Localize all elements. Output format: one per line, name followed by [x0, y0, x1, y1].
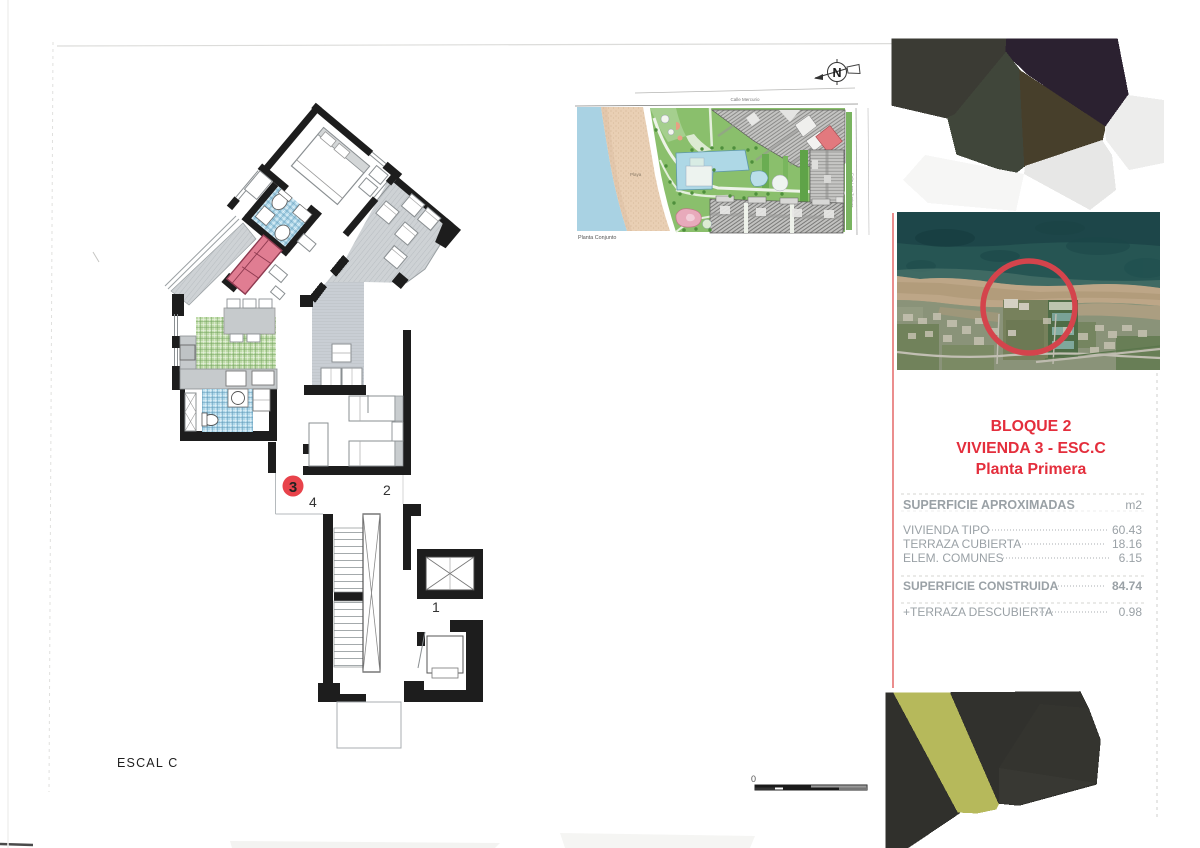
svg-text:0.98: 0.98	[1119, 605, 1143, 619]
svg-text:BLOQUE 2: BLOQUE 2	[991, 418, 1072, 435]
svg-text:Playa: Playa	[630, 172, 642, 177]
svg-text:84.74: 84.74	[1112, 579, 1142, 593]
svg-text:4: 4	[309, 494, 317, 510]
svg-text:SUPERFICIE CONSTRUIDA: SUPERFICIE CONSTRUIDA	[903, 579, 1059, 593]
svg-text:Calle Mercurio: Calle Mercurio	[730, 97, 760, 102]
svg-text:1: 1	[432, 599, 440, 615]
svg-text:VIVIENDA 3 - ESC.C: VIVIENDA 3 - ESC.C	[956, 440, 1106, 457]
svg-text:6.15: 6.15	[1119, 551, 1143, 565]
svg-text:+TERRAZA DESCUBIERTA: +TERRAZA DESCUBIERTA	[903, 605, 1053, 619]
svg-text:3: 3	[289, 479, 297, 496]
svg-text:m2: m2	[1125, 498, 1142, 512]
svg-text:ELEM. COMUNES: ELEM. COMUNES	[903, 551, 1004, 565]
svg-text:2: 2	[383, 482, 391, 498]
svg-text:Planta Conjunto: Planta Conjunto	[578, 235, 616, 241]
svg-text:ESCAL C: ESCAL C	[117, 756, 178, 770]
svg-text:TERRAZA CUBIERTA: TERRAZA CUBIERTA	[903, 537, 1021, 551]
svg-text:18.16: 18.16	[1112, 537, 1142, 551]
svg-text:N: N	[832, 66, 841, 80]
svg-text:SUPERFICIE APROXIMADAS: SUPERFICIE APROXIMADAS	[903, 498, 1075, 512]
svg-text:0: 0	[751, 774, 756, 784]
svg-text:Planta Primera: Planta Primera	[976, 461, 1087, 478]
svg-text:60.43: 60.43	[1112, 523, 1142, 537]
svg-text:VIVIENDA TIPO: VIVIENDA TIPO	[903, 523, 989, 537]
